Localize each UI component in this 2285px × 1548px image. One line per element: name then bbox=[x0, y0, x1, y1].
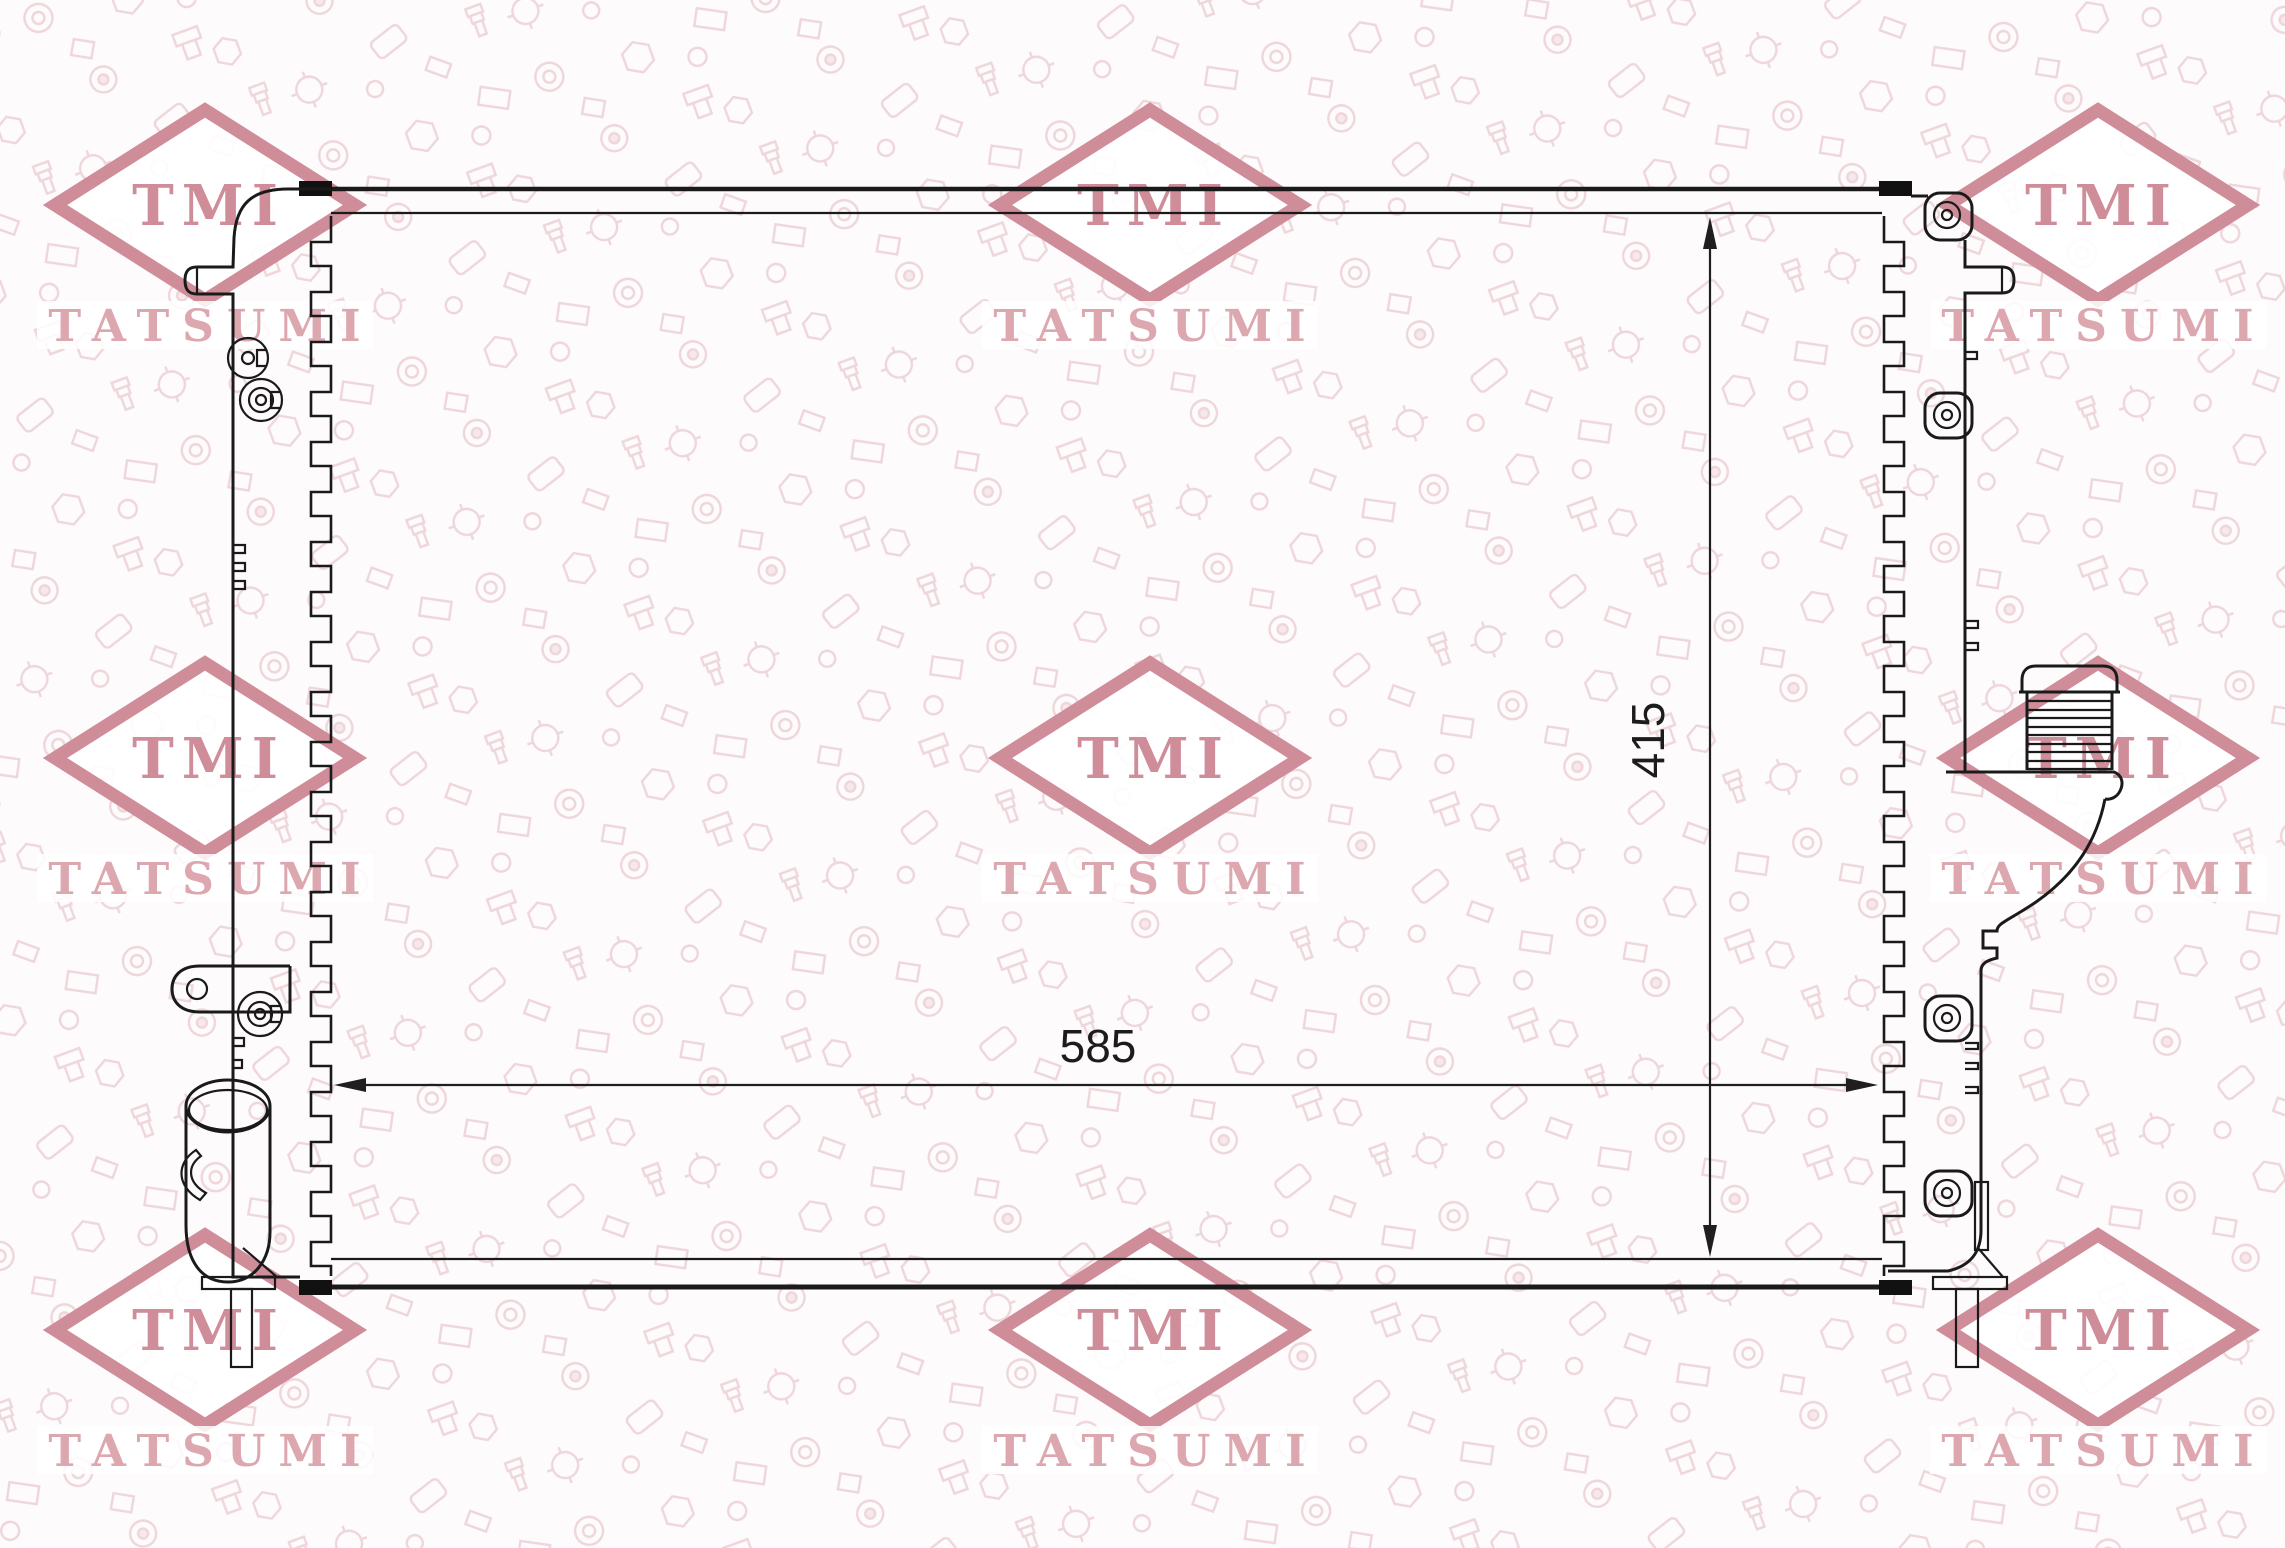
tmi-logo-text: TMI bbox=[132, 1298, 286, 1364]
tatsumi-brand-text: TATSUMI bbox=[48, 301, 373, 352]
tatsumi-brand-text: TATSUMI bbox=[993, 854, 1318, 905]
tmi-logo-text: TMI bbox=[1077, 726, 1231, 792]
mount-pad-top-right bbox=[1879, 181, 1912, 196]
tmi-logo-text: TMI bbox=[132, 726, 286, 792]
tatsumi-brand-text: TATSUMI bbox=[1941, 854, 2266, 905]
tatsumi-brand-text: TATSUMI bbox=[1941, 1426, 2266, 1477]
tmi-logo-text: TMI bbox=[1077, 173, 1231, 239]
core-height-value: 415 bbox=[1622, 702, 1674, 779]
tmi-logo-text: TMI bbox=[2025, 173, 2179, 239]
mount-pad-bottom-right bbox=[1879, 1280, 1912, 1295]
tatsumi-brand-text: TATSUMI bbox=[48, 854, 373, 905]
tatsumi-brand-text: TATSUMI bbox=[48, 1426, 373, 1477]
tmi-logo-text: TMI bbox=[132, 173, 286, 239]
tatsumi-brand-text: TATSUMI bbox=[1941, 301, 2266, 352]
core-width-value: 585 bbox=[1060, 1020, 1137, 1072]
tmi-logo-text: TMI bbox=[1077, 1298, 1231, 1364]
page: TMITATSUMITMITATSUMITMITATSUMITMITATSUMI… bbox=[0, 0, 2285, 1548]
tatsumi-brand-text: TATSUMI bbox=[993, 301, 1318, 352]
tatsumi-brand-text: TATSUMI bbox=[993, 1426, 1318, 1477]
radiator-technical-drawing: TMITATSUMITMITATSUMITMITATSUMITMITATSUMI… bbox=[0, 0, 2285, 1548]
tmi-logo-text: TMI bbox=[2025, 1298, 2179, 1364]
mount-pad-bottom-left bbox=[299, 1280, 332, 1295]
